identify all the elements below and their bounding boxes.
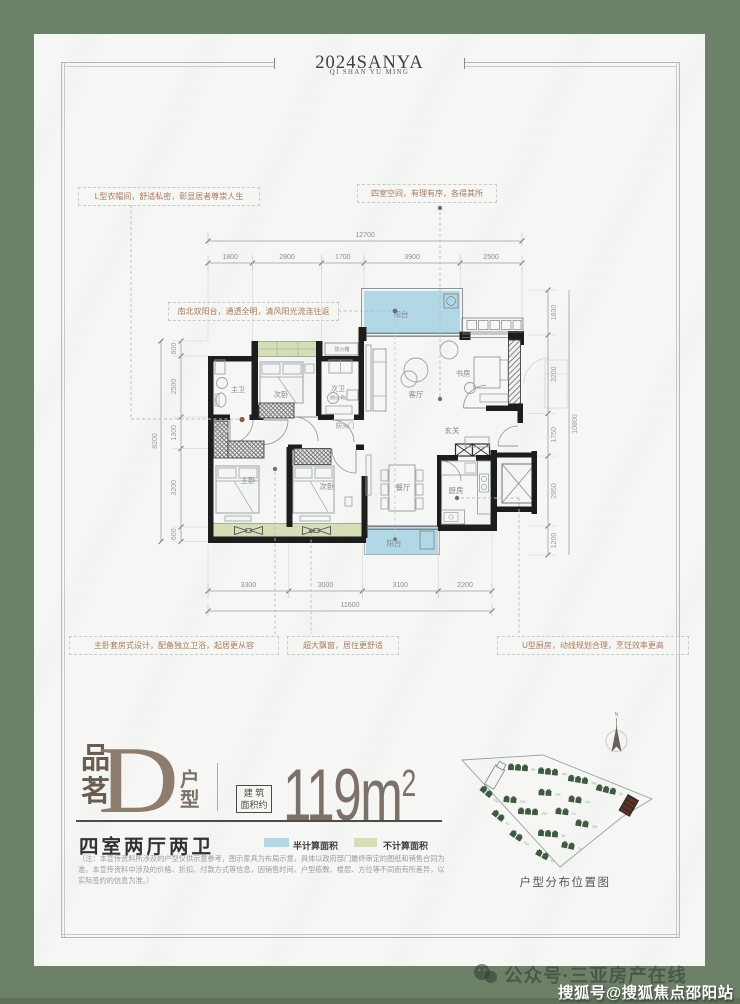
svg-text:2800: 2800: [279, 254, 295, 261]
svg-text:600: 600: [171, 528, 178, 540]
svg-text:客厅: 客厅: [409, 389, 424, 399]
svg-text:20#: 20#: [541, 811, 547, 815]
svg-text:厨房: 厨房: [449, 485, 464, 495]
svg-text:1830: 1830: [551, 305, 558, 321]
svg-text:3000: 3000: [318, 582, 334, 589]
svg-text:主卧: 主卧: [241, 475, 256, 485]
svg-text:1200: 1200: [551, 533, 558, 549]
svg-text:7#: 7#: [577, 847, 582, 852]
svg-text:2500: 2500: [483, 254, 499, 261]
svg-text:主卫: 主卫: [231, 385, 245, 394]
svg-text:8#: 8#: [531, 767, 535, 771]
svg-text:18#: 18#: [591, 781, 597, 786]
svg-text:16#: 16#: [555, 792, 561, 796]
svg-text:2500: 2500: [171, 379, 178, 395]
svg-text:3100: 3100: [392, 582, 408, 589]
svg-text:8200: 8200: [152, 433, 159, 449]
svg-text:次卧: 次卧: [274, 389, 289, 399]
svg-text:次卧: 次卧: [320, 481, 335, 491]
svg-text:19#: 19#: [585, 800, 591, 805]
svg-text:18#: 18#: [591, 824, 597, 829]
svg-text:3200: 3200: [171, 480, 178, 496]
svg-text:(防火箱): (防火箱): [330, 394, 347, 401]
svg-text:9#: 9#: [561, 834, 565, 838]
svg-text:玄关: 玄关: [445, 425, 460, 435]
svg-text:防火箱: 防火箱: [334, 346, 349, 353]
svg-text:1800: 1800: [222, 254, 238, 261]
svg-text:1300: 1300: [171, 425, 178, 441]
svg-text:12700: 12700: [355, 232, 375, 239]
svg-text:10800: 10800: [572, 414, 579, 434]
svg-text:11600: 11600: [341, 602, 360, 609]
svg-text:N: N: [615, 712, 619, 718]
svg-text:1750: 1750: [551, 427, 558, 443]
svg-text:12#: 12#: [492, 797, 499, 804]
svg-text:2850: 2850: [551, 483, 558, 499]
svg-text:20#: 20#: [520, 800, 526, 805]
svg-text:餐厅: 餐厅: [396, 483, 411, 492]
svg-text:次卫: 次卫: [331, 384, 345, 393]
svg-text:3900: 3900: [404, 254, 420, 261]
svg-text:3#: 3#: [504, 821, 510, 827]
svg-text:书房: 书房: [456, 368, 471, 378]
svg-text:防火门: 防火门: [336, 422, 354, 430]
svg-text:1700: 1700: [335, 254, 351, 261]
svg-text:8#: 8#: [550, 858, 555, 863]
svg-text:16#: 16#: [523, 840, 530, 847]
svg-text:1#: 1#: [572, 812, 576, 816]
svg-text:3300: 3300: [241, 582, 257, 589]
svg-text:2200: 2200: [457, 582, 473, 589]
svg-text:5#: 5#: [618, 792, 623, 797]
svg-text:19#: 19#: [561, 772, 567, 777]
svg-text:600: 600: [171, 343, 178, 355]
